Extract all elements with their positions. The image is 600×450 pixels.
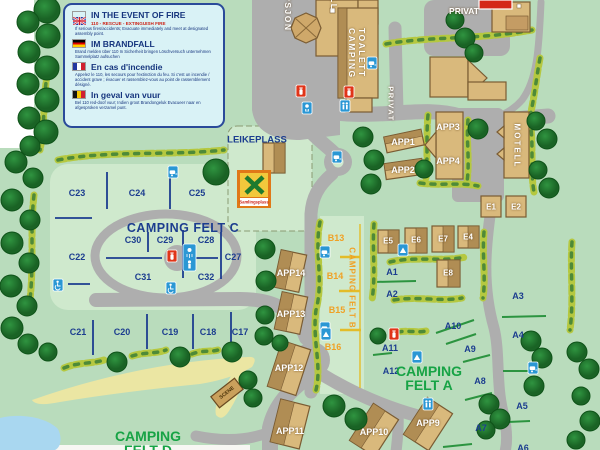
apartment-label-app3: APP3 [436, 122, 460, 132]
plot-label-c29: C29 [157, 235, 174, 245]
wheelchair-icon [166, 282, 176, 294]
plot-label-a8: A8 [474, 376, 486, 386]
plot-label-a10: A10 [445, 321, 462, 331]
plot-label-a2: A2 [386, 289, 398, 299]
plot-label-c28: C28 [198, 235, 215, 245]
assembly-point-label: Samlingsplass [239, 200, 268, 205]
plot-label-c23: C23 [69, 188, 86, 198]
resepsjon-label: RESEPSJON [283, 0, 293, 31]
shower-icon [302, 102, 312, 114]
cabin-label-e1: E1 [486, 203, 496, 212]
plot-label-c22: C22 [69, 252, 86, 262]
legend-row-fr: En cas d'incendie [72, 62, 217, 72]
plot-label-a5: A5 [516, 401, 528, 411]
plot-label-c27: C27 [225, 252, 242, 262]
plot-label-c18: C18 [200, 327, 217, 337]
apartment-label-app12: APP12 [275, 363, 304, 373]
privat-label: PRIVAT [449, 6, 479, 16]
tent-icon [398, 244, 408, 256]
caravan-icon [367, 57, 377, 69]
toilet-icon [423, 398, 433, 410]
tent-icon [321, 328, 331, 340]
caravan-icon [332, 151, 342, 163]
plot-label-a11: A11 [382, 343, 398, 353]
fire-legend-panel: IN THE EVENT OF FIRE 110 - RESCUE - EXTI… [63, 3, 225, 128]
felt-c-title: CAMPING FELT C [127, 221, 239, 235]
apartment-label-app1: APP1 [391, 137, 415, 147]
toilet-icon [340, 100, 350, 112]
fire-extinguisher-icon [296, 85, 306, 97]
plot-label-c24: C24 [129, 188, 146, 198]
apartment-label-app11: APP11 [276, 426, 304, 436]
felt-b-title: CAMPING FELT B [348, 247, 357, 328]
apartment-label-app13: APP13 [277, 309, 306, 319]
tent-icon [412, 351, 422, 363]
plot-label-c21: C21 [70, 327, 87, 337]
caravan-icon [528, 362, 538, 374]
legend-row-en: IN THE EVENT OF FIRE [72, 10, 217, 20]
plot-label-a4: A4 [512, 330, 524, 340]
felt-d-title: CAMPING FELT D [115, 429, 181, 450]
motell-label: MOTELL [513, 124, 522, 169]
playground-label: LEIKEPLASS [227, 135, 287, 146]
legend-row-nl: In geval van vuur [72, 90, 217, 100]
cabin-label-e5: E5 [383, 237, 393, 246]
plot-label-b16: B16 [325, 342, 342, 352]
plot-label-a9: A9 [464, 344, 476, 354]
plot-label-c20: C20 [114, 327, 131, 337]
caravan-icon [320, 246, 330, 258]
french-flag-icon [72, 62, 86, 71]
cabin-label-e2: E2 [511, 203, 521, 212]
apartment-label-app10: APP10 [360, 427, 389, 437]
privat-road-label: PRIVAT [387, 86, 396, 121]
plot-label-c32: C32 [198, 272, 215, 282]
caravan-icon [168, 166, 178, 178]
plot-label-c30: C30 [125, 235, 142, 245]
legend-row-de: IM BRANDFALL [72, 39, 217, 49]
plot-label-a3: A3 [512, 291, 524, 301]
plot-label-c17: C17 [232, 327, 249, 337]
plot-label-c25: C25 [189, 188, 206, 198]
fire-extinguisher-icon [389, 328, 399, 340]
apartment-label-app2: APP2 [391, 165, 415, 175]
toalett-camping-label: TOALETT CAMPING [347, 28, 367, 79]
plot-label-a6: A6 [517, 443, 529, 450]
felt-a-title: CAMPING FELT A [396, 364, 462, 392]
plot-label-c19: C19 [162, 327, 179, 337]
plot-label-a1: A1 [386, 267, 398, 277]
apartment-label-app9: APP9 [416, 418, 440, 428]
cabin-label-e7: E7 [438, 235, 448, 244]
apartment-label-app4: APP4 [436, 156, 460, 166]
privat-house [430, 57, 468, 97]
uk-flag-icon [72, 11, 86, 20]
plot-label-b13: B13 [328, 233, 345, 243]
plot-label-a7: A7 [475, 423, 487, 433]
plot-label-b14: B14 [327, 271, 344, 281]
red-sign [479, 0, 512, 9]
german-flag-icon [72, 39, 86, 48]
sanitary-icon [183, 244, 196, 271]
plot-label-c31: C31 [135, 272, 152, 282]
apartment-label-app14: APP14 [277, 268, 306, 278]
cabin-label-e4: E4 [463, 233, 473, 242]
cabin-label-e6: E6 [411, 236, 421, 245]
fire-extinguisher-icon [167, 250, 177, 262]
campground-map: C23 C24 C25 C22 C30 C29 C28 C27 C31 C32 … [0, 0, 600, 450]
fire-extinguisher-icon [344, 86, 354, 98]
wheelchair-icon [53, 279, 63, 291]
cabin-label-e8: E8 [443, 269, 453, 278]
partial-building-label: LL [329, 0, 339, 10]
belgian-flag-icon [72, 90, 86, 99]
plot-label-b15: B15 [329, 305, 346, 315]
